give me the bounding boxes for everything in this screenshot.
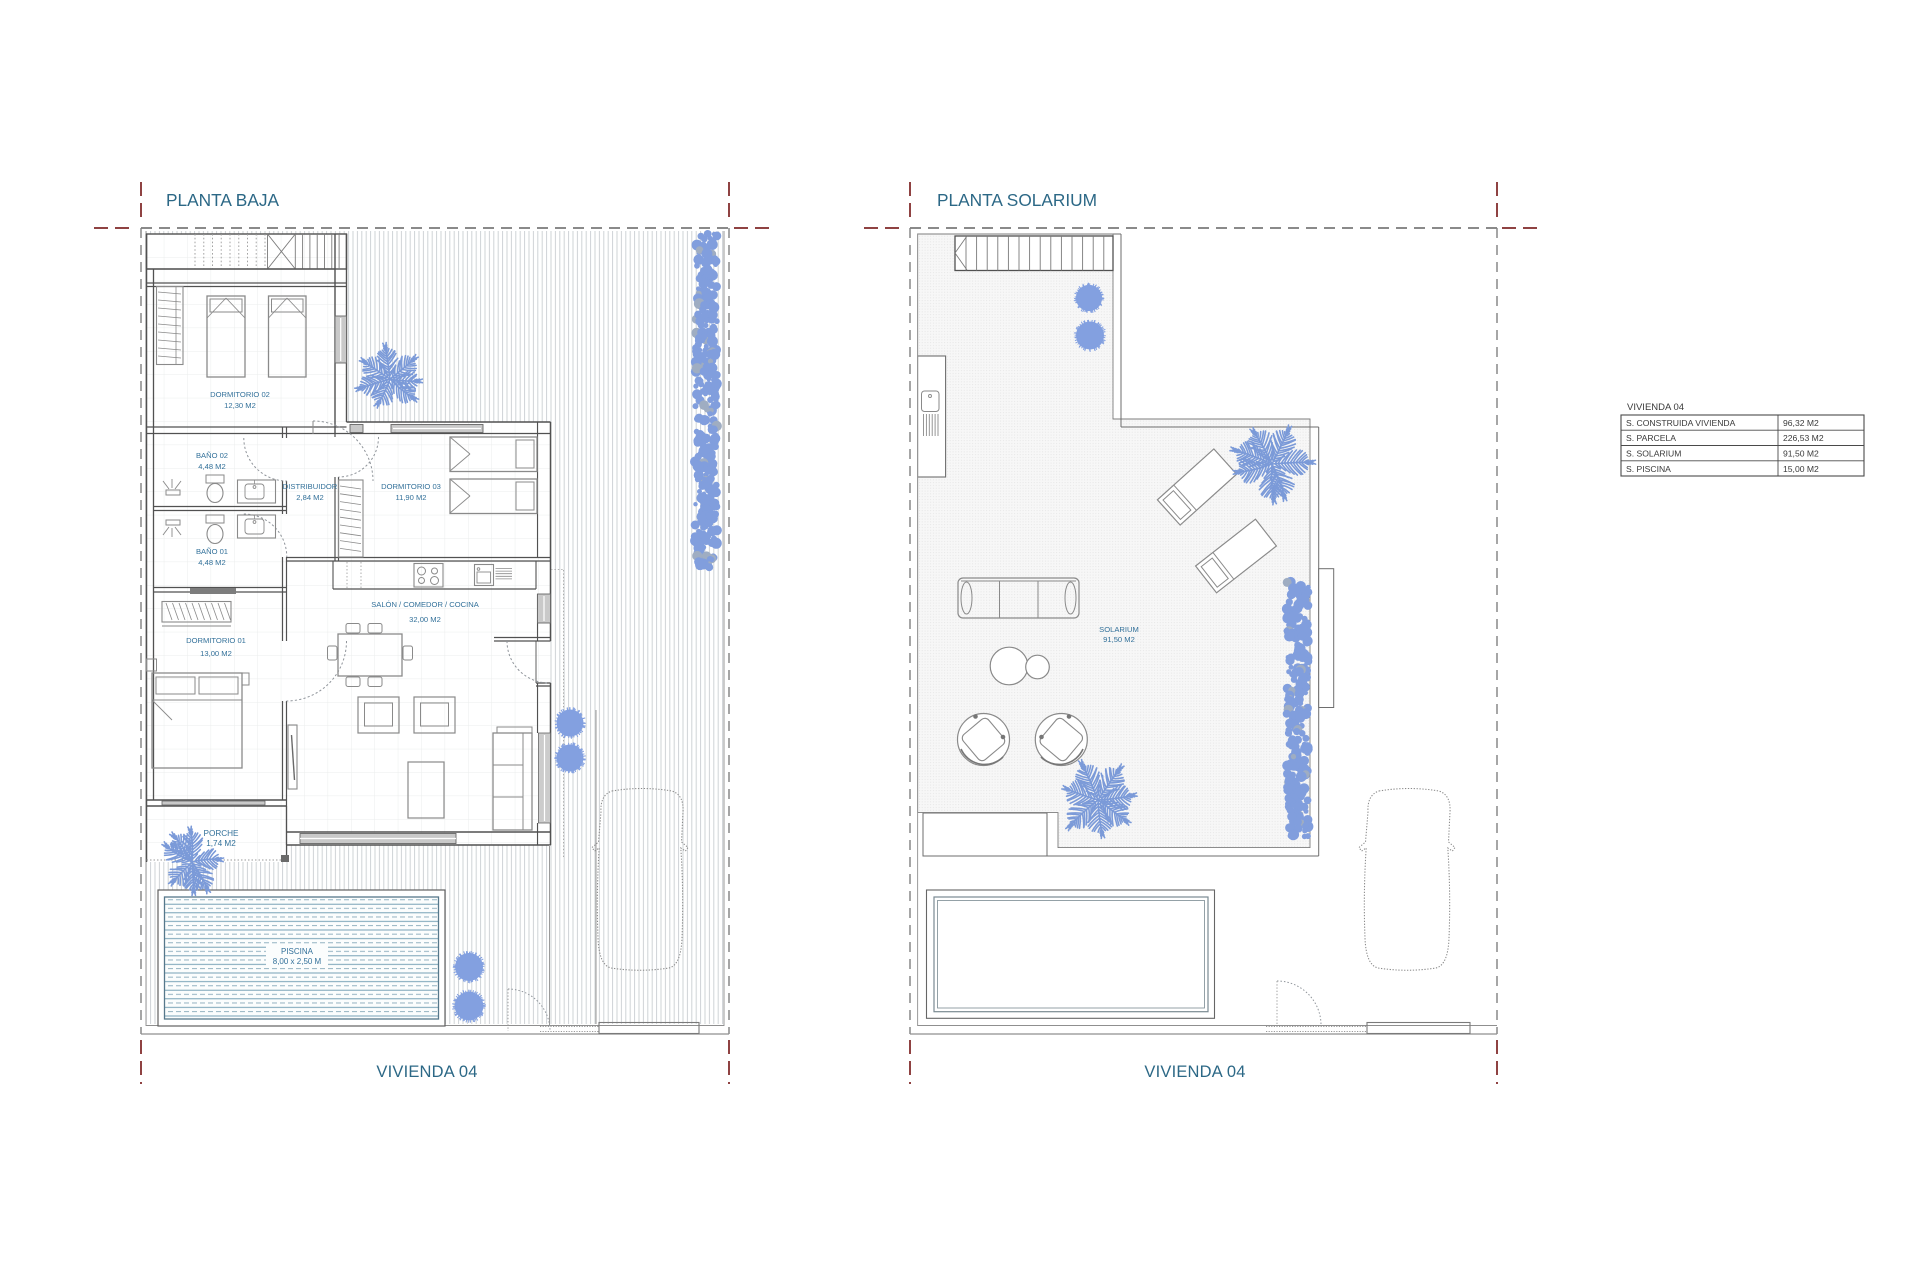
svg-text:32,00 M2: 32,00 M2 xyxy=(409,615,441,624)
svg-text:BAÑO 02: BAÑO 02 xyxy=(196,451,228,460)
svg-text:11,90 M2: 11,90 M2 xyxy=(395,493,426,502)
svg-text:S. PARCELA: S. PARCELA xyxy=(1626,433,1676,443)
svg-text:DORMITORIO 01: DORMITORIO 01 xyxy=(186,636,246,645)
svg-text:VIVIENDA 04: VIVIENDA 04 xyxy=(1144,1063,1245,1081)
svg-text:SOLARIUM: SOLARIUM xyxy=(1099,625,1139,634)
svg-text:4,48 M2: 4,48 M2 xyxy=(198,558,225,567)
svg-text:12,30 M2: 12,30 M2 xyxy=(224,401,256,410)
svg-text:BAÑO 01: BAÑO 01 xyxy=(196,547,228,556)
svg-text:DORMITORIO 03: DORMITORIO 03 xyxy=(381,482,441,491)
svg-text:2,84 M2: 2,84 M2 xyxy=(296,493,323,502)
svg-text:13,00 M2: 13,00 M2 xyxy=(200,649,232,658)
svg-text:PISCINA: PISCINA xyxy=(281,947,314,956)
svg-text:226,53 M2: 226,53 M2 xyxy=(1783,433,1824,443)
svg-text:DORMITORIO 02: DORMITORIO 02 xyxy=(210,390,270,399)
svg-text:SALÓN / COMEDOR / COCINA: SALÓN / COMEDOR / COCINA xyxy=(371,600,480,609)
svg-text:PORCHE: PORCHE xyxy=(203,829,239,838)
svg-text:96,32 M2: 96,32 M2 xyxy=(1783,418,1819,428)
svg-text:4,48 M2: 4,48 M2 xyxy=(198,462,225,471)
svg-text:PLANTA BAJA: PLANTA BAJA xyxy=(166,190,279,210)
svg-text:91,50 M2: 91,50 M2 xyxy=(1783,449,1819,459)
svg-text:DISTRIBUIDOR: DISTRIBUIDOR xyxy=(283,482,338,491)
svg-text:15,00 M2: 15,00 M2 xyxy=(1783,464,1819,474)
svg-text:S. CONSTRUIDA VIVIENDA: S. CONSTRUIDA VIVIENDA xyxy=(1626,418,1736,428)
svg-text:VIVIENDA 04: VIVIENDA 04 xyxy=(1627,402,1684,413)
svg-text:8,00 x 2,50 M: 8,00 x 2,50 M xyxy=(273,957,322,966)
svg-text:S. SOLARIUM: S. SOLARIUM xyxy=(1626,449,1681,459)
svg-text:91,50 M2: 91,50 M2 xyxy=(1103,635,1135,644)
svg-text:1,74 M2: 1,74 M2 xyxy=(206,839,236,848)
svg-text:PLANTA SOLARIUM: PLANTA SOLARIUM xyxy=(937,190,1097,210)
svg-text:VIVIENDA 04: VIVIENDA 04 xyxy=(376,1063,477,1081)
svg-text:S. PISCINA: S. PISCINA xyxy=(1626,464,1671,474)
